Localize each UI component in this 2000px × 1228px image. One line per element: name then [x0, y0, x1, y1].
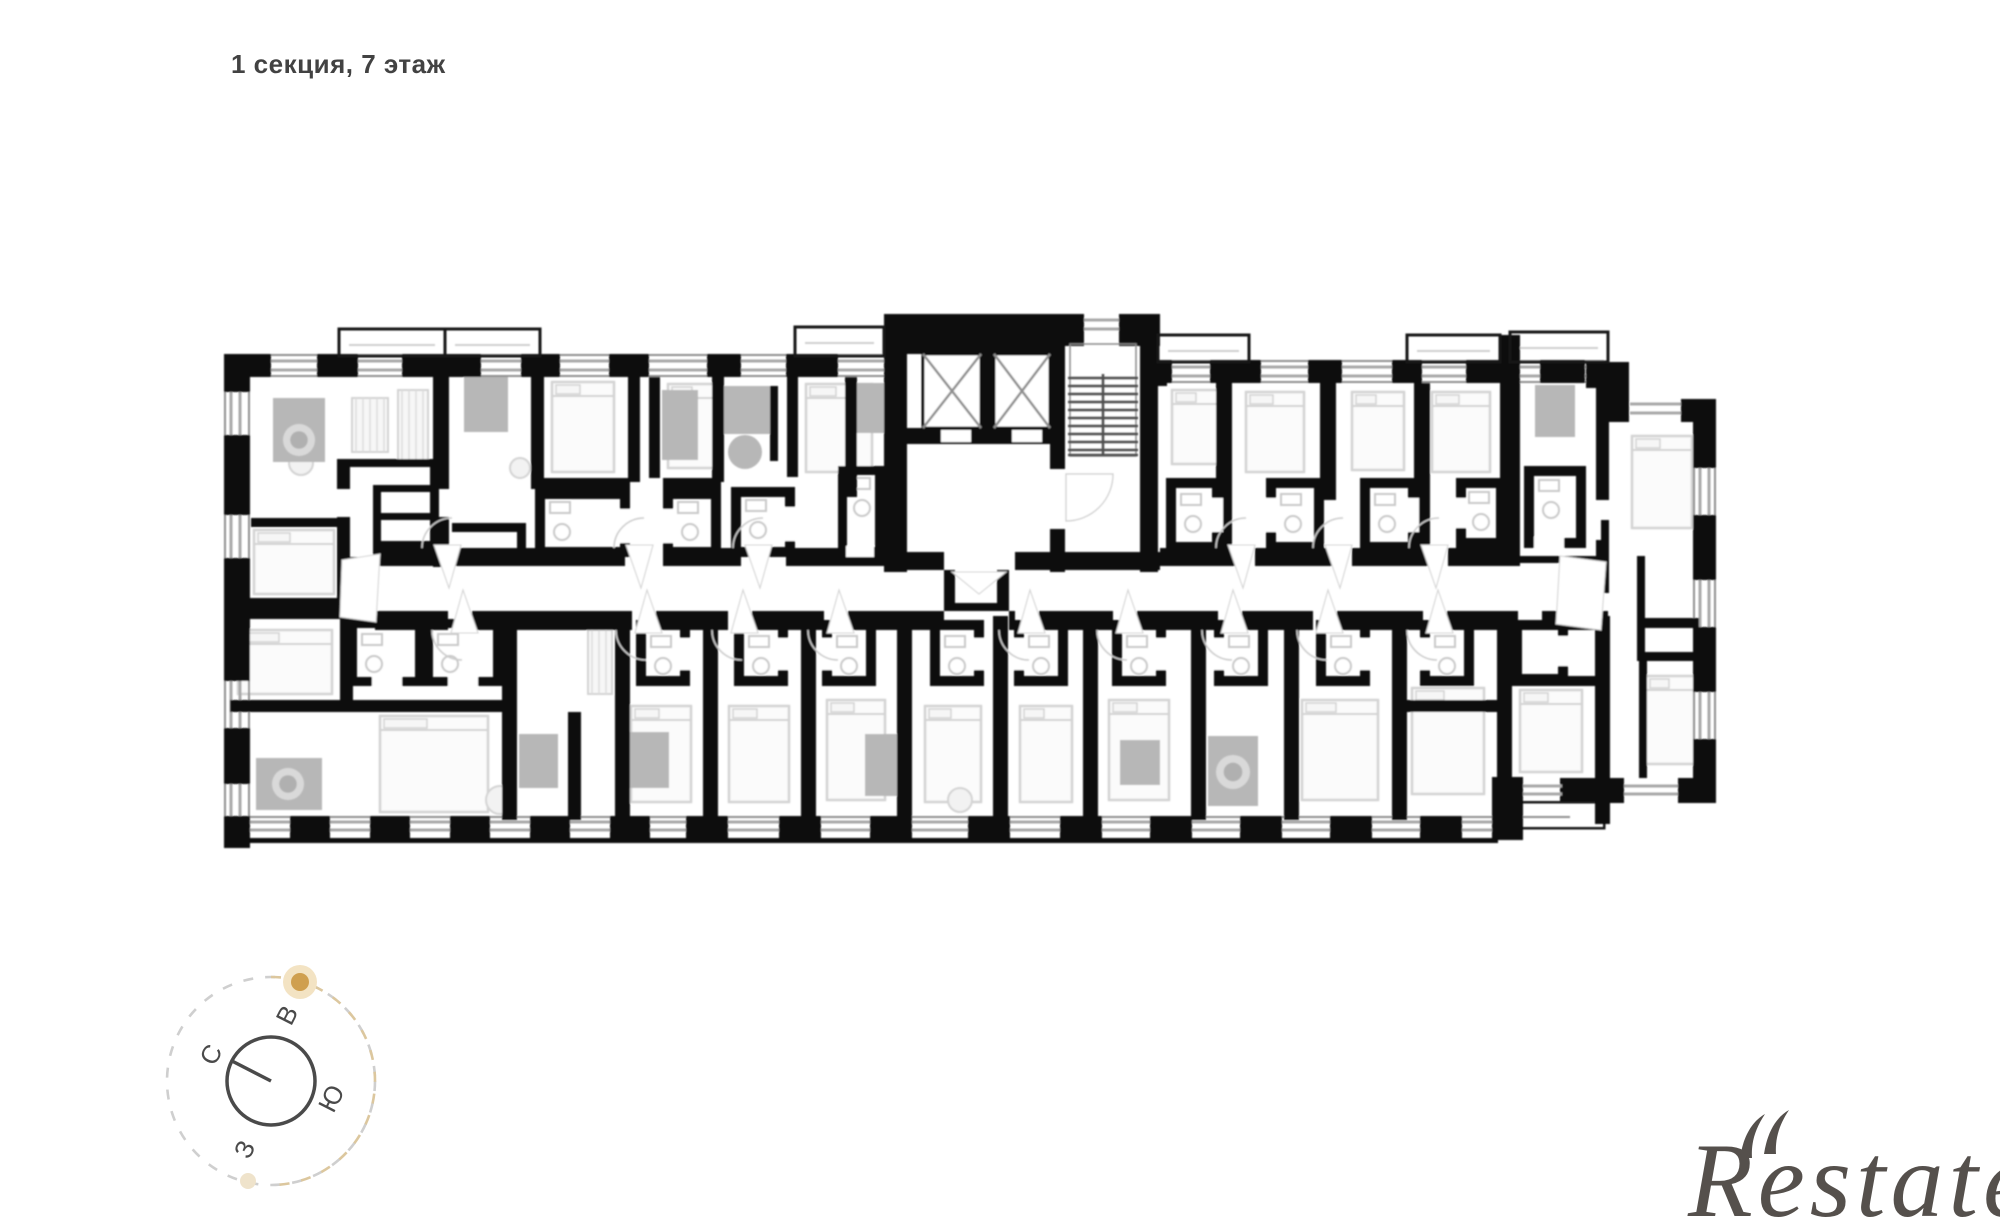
- svg-text:1 секция, 7 этаж: 1 секция, 7 этаж: [231, 49, 446, 79]
- svg-text:Restate: Restate: [1687, 1122, 2000, 1223]
